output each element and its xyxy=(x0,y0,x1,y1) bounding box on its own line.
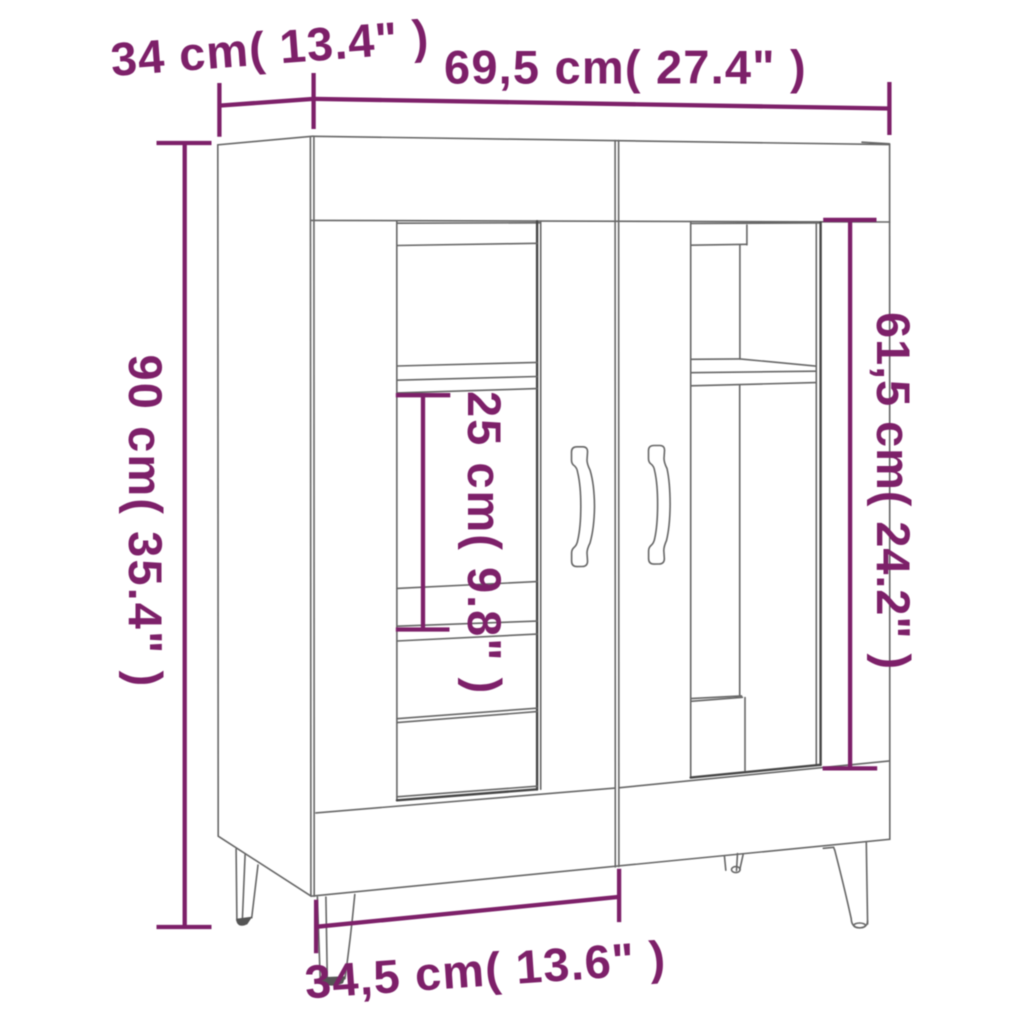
svg-text:25 cm( 9.8" ): 25 cm( 9.8" ) xyxy=(458,391,511,695)
svg-text:69,5 cm( 27.4" ): 69,5 cm( 27.4" ) xyxy=(444,41,807,94)
svg-text:90 cm( 35.4" ): 90 cm( 35.4" ) xyxy=(119,355,172,689)
svg-text:61,5 cm( 24.2" ): 61,5 cm( 24.2" ) xyxy=(867,312,920,670)
